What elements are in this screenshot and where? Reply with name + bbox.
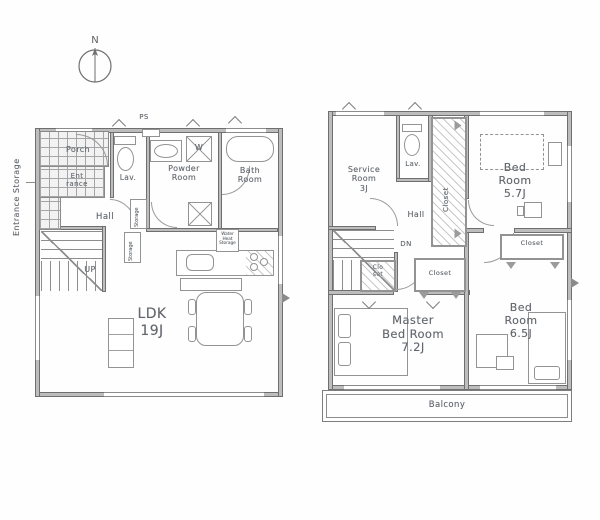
f2-wall <box>396 115 400 181</box>
chair-icon <box>188 299 196 315</box>
dining-table-icon <box>196 292 244 346</box>
toilet-icon <box>402 124 422 132</box>
stove-burner-icon <box>250 253 258 261</box>
entrance-storage-tiles <box>39 197 61 230</box>
room-label-lav-2f: Lav. <box>397 160 429 168</box>
floor-plan: N Entrance Storage W Water Hea <box>0 0 600 520</box>
f1-stairs-wall <box>102 226 106 292</box>
stairs-diagonal <box>41 231 102 291</box>
toilet-icon <box>404 134 420 156</box>
kitchen-sink-icon <box>186 254 214 271</box>
window <box>567 300 572 360</box>
chair-icon <box>517 206 524 216</box>
closet-mid-label: Closet <box>414 270 466 278</box>
vent-icon <box>362 295 376 309</box>
room-label-entrance: Ent rance <box>58 172 96 189</box>
water-heater-label: Water Heat Storage <box>218 232 238 246</box>
powder-door-arc <box>151 202 177 228</box>
stairs-up-label: UP <box>76 265 104 274</box>
chair-icon <box>188 326 196 342</box>
hanger-hook-icon <box>419 292 429 299</box>
kitchen-island <box>180 278 242 291</box>
bed1-door-arc <box>468 200 494 226</box>
hanger-hook-icon <box>506 262 516 269</box>
compass-north-label: N <box>91 35 98 46</box>
hanger-hook-icon <box>455 121 462 131</box>
room-label-lav-1f: Lav. <box>111 174 145 183</box>
storage-label: Storage <box>128 234 134 261</box>
window <box>278 236 283 284</box>
stairs-down-label: DN <box>394 240 418 248</box>
room-label-service: Service Room 3J <box>334 165 394 193</box>
hanger-hook-icon <box>550 262 560 269</box>
bathtub-icon <box>226 136 274 162</box>
vent-arrow-icon <box>571 278 579 288</box>
room-label-master: Master Bed Room 7.2J <box>362 314 464 355</box>
room-label-ldk: LDK 19J <box>120 306 184 339</box>
stove-burner-icon <box>250 263 258 271</box>
pillow-icon <box>534 366 560 380</box>
room-label-powder: Powder Room <box>151 164 217 183</box>
storage-label: Storage <box>134 201 140 227</box>
room-label-bath: Bath Room <box>224 166 276 185</box>
stove-burner-icon <box>260 258 268 266</box>
toilet-icon <box>117 147 134 171</box>
window <box>567 146 572 202</box>
floor-hatch-icon <box>188 202 212 226</box>
window <box>104 392 264 397</box>
chair-icon <box>244 326 252 342</box>
closet-bed2-label: Closet <box>500 240 564 248</box>
service-door-arc <box>370 198 398 226</box>
room-label-hall-1f: Hall <box>84 212 126 222</box>
stairs-diagonal <box>333 230 394 290</box>
room-label-bed2: Bed Room 6.5J <box>490 302 552 341</box>
hanger-hook-icon <box>455 229 462 239</box>
ps-label: PS <box>134 113 154 121</box>
window <box>336 111 384 116</box>
chair-icon <box>496 356 514 370</box>
vent-arrow-icon <box>282 293 290 303</box>
balcony: Balcony <box>322 390 572 422</box>
washer-label: W <box>186 143 212 152</box>
sink-icon <box>154 144 178 158</box>
compass-icon: N <box>70 30 120 88</box>
f2-wall <box>514 228 572 233</box>
room-label-hall-2f: Hall <box>398 210 434 219</box>
f2-wall <box>464 232 469 390</box>
window <box>226 128 266 133</box>
window <box>35 296 40 360</box>
desk-icon <box>524 202 542 218</box>
entrance-storage-side-label: Entrance Storage <box>12 140 21 236</box>
pipe-space <box>142 129 160 137</box>
toilet-icon <box>114 136 136 145</box>
f1-wall <box>146 228 278 232</box>
room-label-bed1: Bed Room 5.7J <box>484 162 546 201</box>
room-label-porch: Porch <box>56 145 100 154</box>
chair-icon <box>244 299 252 315</box>
window <box>480 111 544 116</box>
closet-hall-label: Closet <box>442 152 450 212</box>
hanger-hook-icon <box>451 292 461 299</box>
nightstand-icon <box>548 142 562 166</box>
f2-wall <box>396 178 432 182</box>
pillow-icon <box>338 314 351 338</box>
room-label-balcony: Balcony <box>323 400 571 410</box>
sofa-cushion-line <box>109 350 133 351</box>
pillow-icon <box>338 342 351 366</box>
